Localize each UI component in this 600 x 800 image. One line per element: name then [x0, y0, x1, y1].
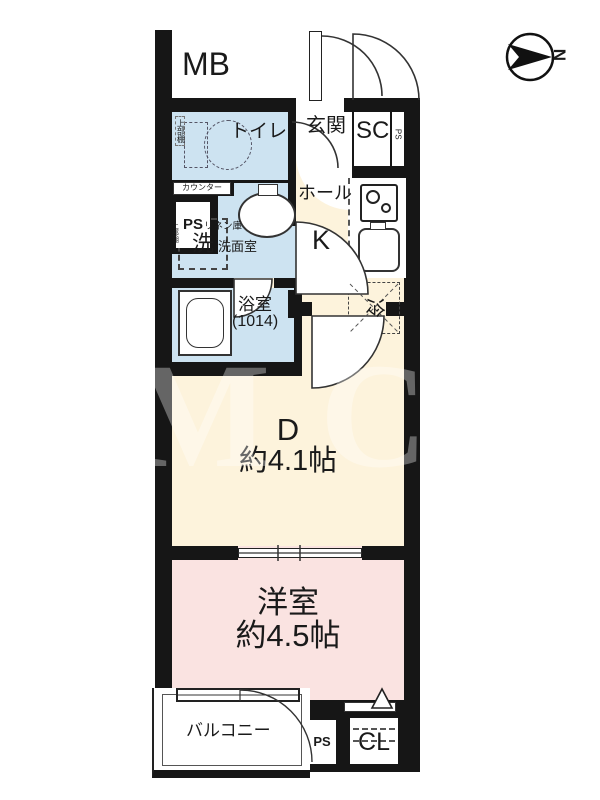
- washroom-label: 洗面室: [218, 240, 257, 254]
- kitchen-label: K: [312, 226, 330, 254]
- linen-label: リネン庫: [204, 222, 242, 232]
- balcony-label: バルコニー: [186, 722, 271, 740]
- floorplan-lines: [0, 0, 600, 800]
- closet-door-triangle: [372, 689, 392, 708]
- western-room-size-label: 約4.5帖: [235, 620, 340, 653]
- western-room-label: 洋室: [257, 587, 319, 620]
- closet-label: CL: [350, 722, 398, 762]
- entrance-door-arc: [353, 34, 419, 100]
- mb-label: MB: [182, 48, 230, 82]
- ps-bottom-label: PS: [308, 720, 336, 764]
- bathroom-label: 浴室: [238, 296, 272, 314]
- counter-label: カウンター: [173, 182, 231, 195]
- western-room-label-group: 洋室 約4.5帖: [172, 574, 404, 666]
- shoe-closet-label: SC: [356, 118, 389, 143]
- dining-label-group: D 約4.1帖: [172, 403, 404, 487]
- washer-shelf-label: 上部棚: [171, 222, 178, 243]
- dining-size-label: 約4.1帖: [239, 446, 337, 476]
- bathroom-size-label: (1014): [232, 314, 278, 331]
- dining-label: D: [277, 414, 299, 447]
- floorplan-page: MB トイレ 上部棚 カウンター PS 玄関 SC PS ホール K 洗 上部棚…: [0, 0, 600, 800]
- genkan-label: 玄関: [306, 116, 346, 137]
- toilet-shelf-label: 上部棚: [175, 116, 185, 146]
- toilet-label: トイレ: [230, 122, 287, 142]
- ps-side-label: PS: [393, 129, 401, 140]
- compass-north-label: N: [550, 49, 568, 61]
- hall-label: ホール: [298, 184, 352, 203]
- fridge-label: 冷: [348, 282, 400, 334]
- mb-door-arc: [322, 36, 382, 96]
